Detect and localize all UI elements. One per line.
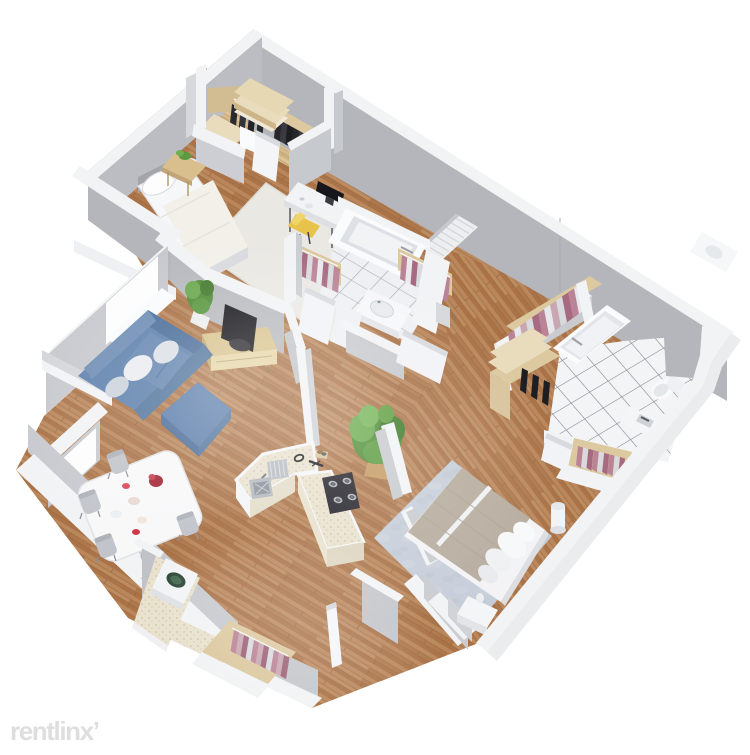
svg-text:rentlinx’: rentlinx’ <box>10 716 99 746</box>
